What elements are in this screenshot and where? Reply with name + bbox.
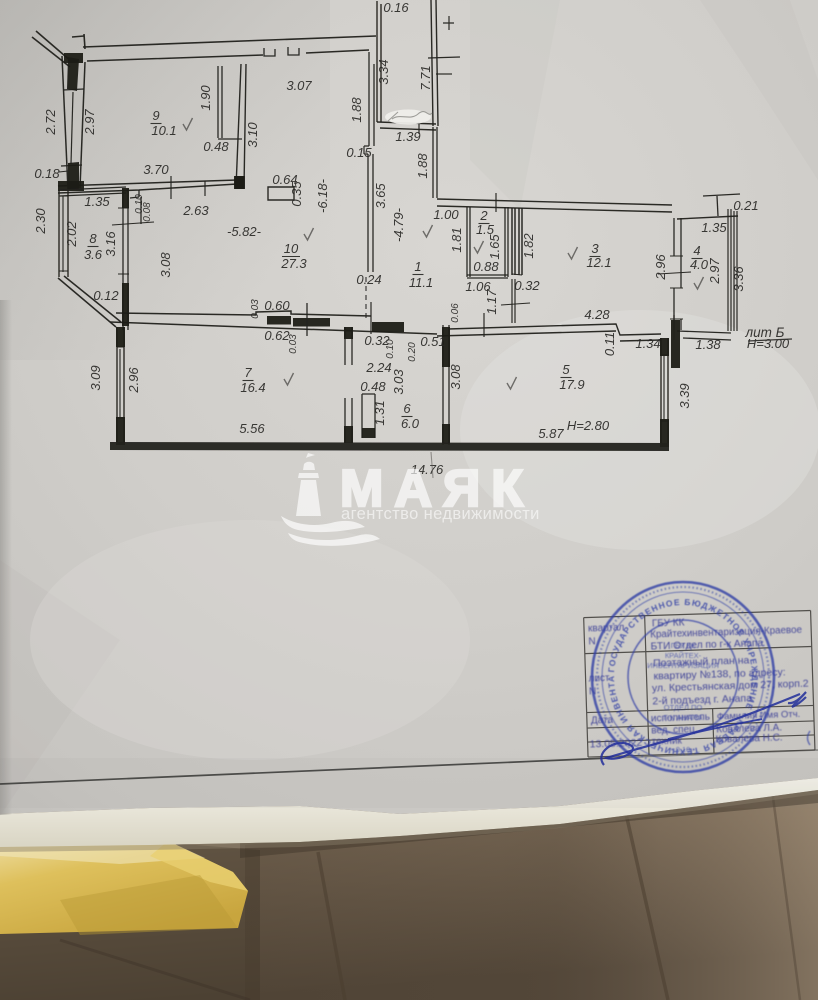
svg-text:ИНВЕНТАРИЗАЦИЯ: ИНВЕНТАРИЗАЦИЯ — [647, 661, 719, 670]
svg-text:3.10: 3.10 — [245, 122, 260, 148]
svg-text:1.00: 1.00 — [433, 207, 459, 222]
svg-text:0.62: 0.62 — [264, 328, 290, 343]
svg-text:4.28: 4.28 — [584, 307, 610, 322]
svg-text:1.35: 1.35 — [701, 220, 727, 235]
svg-text:8: 8 — [89, 231, 97, 246]
svg-text:2.72: 2.72 — [43, 109, 58, 136]
svg-text:1.81: 1.81 — [449, 227, 464, 252]
svg-text:3.39: 3.39 — [677, 383, 692, 408]
svg-text:3.08: 3.08 — [448, 364, 463, 390]
svg-text:0.15: 0.15 — [346, 145, 372, 160]
svg-text:0.20: 0.20 — [407, 342, 418, 362]
svg-text:Н=3.00: Н=3.00 — [747, 336, 790, 351]
svg-text:4: 4 — [693, 243, 700, 258]
svg-text:3.16: 3.16 — [103, 231, 118, 257]
svg-text:17.9: 17.9 — [559, 377, 584, 392]
svg-text:0.24: 0.24 — [356, 272, 381, 287]
svg-text:1.34: 1.34 — [635, 336, 660, 351]
svg-text:7.71: 7.71 — [418, 65, 433, 90]
svg-text:3.09: 3.09 — [88, 365, 103, 390]
svg-text:3.08: 3.08 — [158, 252, 173, 278]
svg-text:0.03: 0.03 — [250, 299, 261, 319]
svg-text:1.88: 1.88 — [415, 153, 430, 179]
svg-text:0.03: 0.03 — [288, 334, 299, 354]
svg-text:3.36: 3.36 — [731, 266, 746, 292]
svg-text:0.21: 0.21 — [733, 198, 758, 213]
svg-text:16.4: 16.4 — [240, 380, 265, 395]
svg-text:0.08: 0.08 — [142, 202, 153, 222]
svg-text:-6.18-: -6.18- — [315, 178, 330, 213]
svg-text:агентство недвижимости: агентство недвижимости — [341, 505, 540, 523]
svg-text:2.63: 2.63 — [182, 203, 209, 218]
svg-text:3.70: 3.70 — [143, 162, 169, 177]
svg-text:ГБУ КК: ГБУ КК — [671, 641, 696, 650]
svg-text:12.1: 12.1 — [586, 255, 611, 270]
svg-text:ОТДЕЛ ПО: ОТДЕЛ ПО — [664, 703, 703, 712]
svg-text:9: 9 — [152, 108, 159, 123]
svg-text:0.88: 0.88 — [473, 259, 499, 274]
svg-text:0.60: 0.60 — [264, 298, 290, 313]
svg-text:Н=2.80: Н=2.80 — [567, 418, 610, 433]
svg-text:Г-К АНАПА: Г-К АНАПА — [664, 713, 703, 722]
svg-text:1.88: 1.88 — [349, 97, 364, 123]
svg-text:1.90: 1.90 — [198, 85, 213, 111]
svg-text:3.34: 3.34 — [376, 59, 391, 84]
svg-text:1.35: 1.35 — [84, 194, 110, 209]
svg-text:2.96: 2.96 — [126, 367, 141, 394]
svg-text:3.03: 3.03 — [391, 369, 406, 395]
svg-text:5.56: 5.56 — [239, 421, 265, 436]
svg-text:2: 2 — [479, 208, 488, 223]
svg-text:5: 5 — [562, 362, 570, 377]
svg-text:N: N — [588, 636, 596, 647]
svg-text:7: 7 — [244, 365, 252, 380]
svg-text:11.1: 11.1 — [409, 275, 433, 290]
svg-text:3.6: 3.6 — [84, 247, 103, 262]
svg-text:1.65: 1.65 — [487, 234, 502, 260]
svg-text:1.31: 1.31 — [372, 400, 387, 425]
svg-text:10: 10 — [284, 241, 299, 256]
svg-text:6: 6 — [403, 401, 411, 416]
svg-text:2.97: 2.97 — [82, 109, 97, 136]
svg-text:2.96: 2.96 — [653, 254, 668, 281]
svg-text:0.32: 0.32 — [514, 278, 540, 293]
svg-text:0.48: 0.48 — [203, 139, 229, 154]
svg-text:27.3: 27.3 — [280, 256, 307, 271]
svg-text:0.16: 0.16 — [383, 0, 409, 15]
svg-text:4.0: 4.0 — [690, 257, 709, 272]
svg-text:3.65: 3.65 — [373, 183, 388, 209]
svg-text:3.07: 3.07 — [286, 78, 312, 93]
svg-text:-4.79-: -4.79- — [391, 207, 406, 242]
svg-text:1: 1 — [414, 259, 421, 274]
svg-text:0.51: 0.51 — [420, 334, 445, 349]
svg-text:1.39: 1.39 — [395, 129, 420, 144]
svg-text:0.48: 0.48 — [360, 379, 386, 394]
svg-text:2.24: 2.24 — [365, 360, 391, 375]
svg-text:0.35: 0.35 — [289, 181, 304, 207]
svg-text:1.17: 1.17 — [484, 289, 499, 315]
svg-text:0.18: 0.18 — [34, 166, 60, 181]
svg-text:вед. спец.: вед. спец. — [651, 724, 698, 736]
svg-text:0.10: 0.10 — [385, 339, 396, 359]
svg-text:1.82: 1.82 — [521, 233, 536, 259]
svg-text:2.30: 2.30 — [33, 208, 48, 235]
svg-text:КРАЙТЕХ-: КРАЙТЕХ- — [665, 651, 702, 660]
svg-text:2.97: 2.97 — [707, 258, 722, 285]
svg-text:-5.82-: -5.82- — [227, 224, 262, 239]
svg-text:6.0: 6.0 — [401, 416, 420, 431]
svg-text:3: 3 — [591, 241, 599, 256]
svg-text:0.11: 0.11 — [602, 332, 617, 356]
svg-text:• 0.10 •: • 0.10 • — [671, 745, 695, 754]
svg-text:5.87: 5.87 — [538, 426, 564, 441]
svg-text:0.12: 0.12 — [93, 288, 119, 303]
svg-text:0.06: 0.06 — [450, 303, 461, 323]
svg-text:1.5: 1.5 — [476, 222, 495, 237]
svg-text:1.38: 1.38 — [695, 337, 721, 352]
svg-text:2.02: 2.02 — [64, 221, 79, 248]
svg-text:10.1: 10.1 — [151, 123, 176, 138]
